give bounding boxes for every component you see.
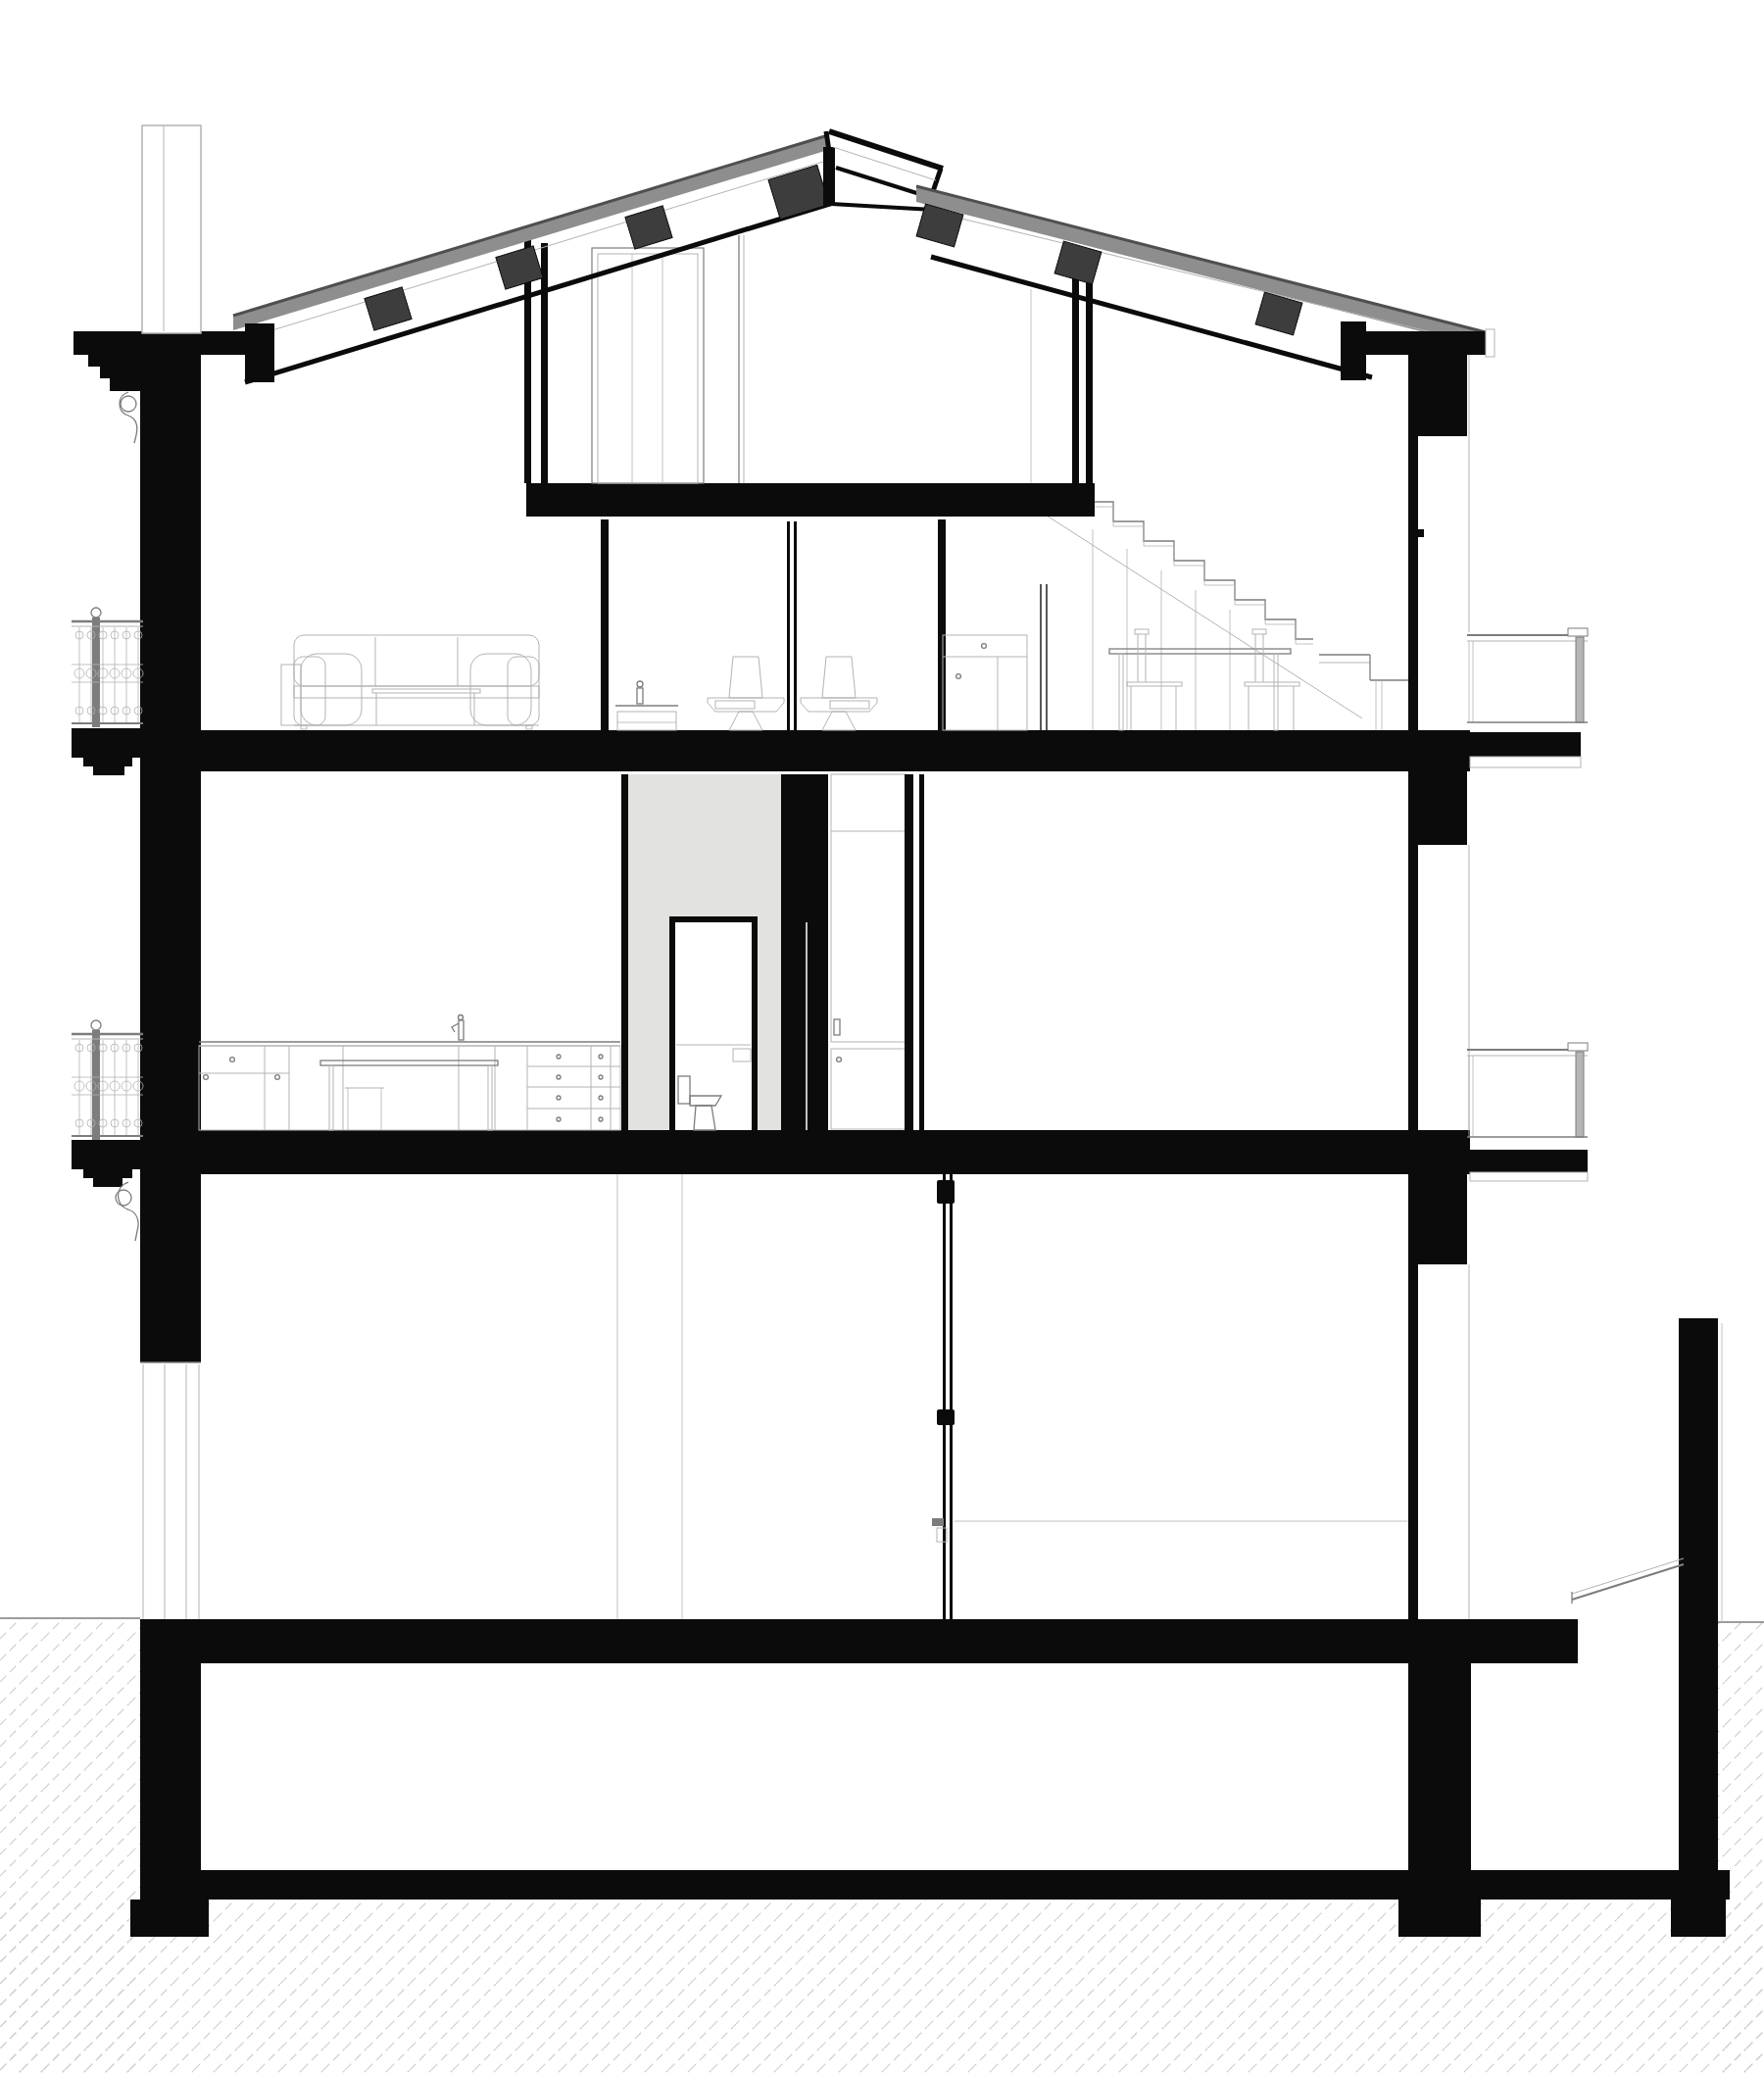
ornate-balcony-railing bbox=[72, 1020, 143, 1140]
basement-left-wall bbox=[140, 1663, 201, 1900]
left-window-ground bbox=[140, 1362, 201, 1619]
right-glazing-frame-ground bbox=[1408, 1264, 1418, 1619]
right-glazing-frame-middle bbox=[1408, 845, 1418, 1130]
right-glazing-frame-attic bbox=[1408, 436, 1418, 730]
middle-floor bbox=[72, 771, 1588, 1241]
ground-floor-slab bbox=[140, 1619, 1578, 1663]
left-wall-attic bbox=[140, 355, 201, 730]
right-roof-ceiling-line bbox=[931, 257, 1372, 377]
ornate-balcony-railing bbox=[72, 608, 143, 727]
left-balcony-slab-2 bbox=[72, 1140, 140, 1169]
left-footing bbox=[130, 1900, 209, 1937]
partition-wall bbox=[905, 774, 913, 1130]
cabinet-knobs bbox=[204, 1055, 603, 1121]
attic-partition bbox=[938, 519, 946, 730]
left-facade-railings bbox=[72, 608, 143, 1140]
dining-set bbox=[1109, 629, 1299, 730]
balcony-molding bbox=[93, 766, 124, 775]
dining-chair bbox=[1245, 629, 1299, 730]
loft-stair bbox=[1019, 498, 1362, 730]
left-eave-block bbox=[245, 323, 274, 382]
balcony-molding bbox=[83, 1169, 132, 1178]
loft-door bbox=[592, 248, 704, 483]
exterior-stair-handrail bbox=[1572, 1558, 1684, 1604]
ground-floor bbox=[140, 1174, 1684, 1663]
purlin bbox=[496, 246, 543, 289]
glass-partition-attic bbox=[787, 521, 790, 730]
kitchen-table bbox=[320, 1061, 498, 1130]
door-frame-head bbox=[669, 916, 758, 922]
door-hinge bbox=[932, 1518, 944, 1526]
garden-wall-footing bbox=[1671, 1900, 1726, 1937]
pedestal-chair bbox=[708, 657, 784, 730]
middle-footing bbox=[1398, 1900, 1481, 1937]
partition-wall bbox=[919, 774, 924, 1130]
ridge-beam bbox=[831, 204, 933, 210]
service-core bbox=[621, 774, 828, 1130]
glass-partition-attic bbox=[794, 521, 797, 730]
modern-balcony-railing bbox=[1467, 1043, 1588, 1137]
left-wall-middle bbox=[140, 771, 201, 1130]
left-balcony-slab-1 bbox=[72, 728, 140, 758]
purlin bbox=[625, 206, 672, 249]
core-door-opening bbox=[675, 922, 752, 1130]
left-wall-ground bbox=[140, 1174, 201, 1362]
purlin bbox=[1054, 241, 1102, 284]
basement-middle-wall bbox=[1408, 1663, 1471, 1900]
purlin bbox=[365, 287, 412, 330]
loft-right-wall bbox=[1072, 247, 1079, 483]
right-pier-attic bbox=[1408, 355, 1467, 436]
washbasin bbox=[615, 681, 678, 730]
right-balcony-slab-2 bbox=[1470, 1150, 1588, 1172]
stone-corbel bbox=[116, 1182, 138, 1241]
attic-floor-slab bbox=[140, 730, 1470, 771]
dining-chair bbox=[1127, 629, 1182, 730]
door-frame-jamb bbox=[752, 922, 758, 1130]
building-section-drawing bbox=[0, 0, 1764, 2073]
kitchen-faucet bbox=[452, 1015, 464, 1041]
kitchen bbox=[199, 1015, 620, 1131]
under-stair-cabinet bbox=[943, 635, 1027, 730]
glass-partition-ground bbox=[932, 1174, 1408, 1619]
earth-hatching bbox=[0, 1618, 1764, 2073]
pedestal-chair bbox=[801, 657, 877, 730]
middle-floor-slab bbox=[140, 1130, 1470, 1174]
modern-balcony-railing bbox=[1467, 628, 1588, 722]
cornice-console bbox=[120, 392, 137, 443]
balcony-soffit bbox=[1470, 757, 1581, 767]
attic-partition bbox=[601, 519, 609, 730]
balcony-molding bbox=[83, 758, 132, 766]
ridge-purlin bbox=[768, 165, 829, 219]
stair-stringer bbox=[1019, 498, 1362, 718]
window-sill-jog bbox=[1408, 529, 1424, 537]
loft-left-wall bbox=[541, 243, 548, 483]
right-balcony-slab-1 bbox=[1470, 732, 1581, 757]
right-cornice bbox=[1357, 329, 1494, 357]
right-roof-covering bbox=[916, 186, 1490, 349]
right-pier-ground bbox=[1408, 1174, 1467, 1264]
right-roof-edge bbox=[916, 186, 1490, 333]
right-pier-middle bbox=[1408, 771, 1467, 845]
section-drawing-canvas bbox=[0, 0, 1764, 2073]
wardrobe-handle bbox=[834, 1019, 840, 1035]
wardrobe bbox=[831, 774, 907, 1129]
roof bbox=[73, 125, 1494, 443]
armchair bbox=[301, 654, 362, 725]
chimney bbox=[142, 125, 201, 333]
core-black-wall bbox=[787, 774, 828, 1130]
balcony-molding bbox=[93, 1178, 122, 1187]
basement-floor-slab bbox=[140, 1870, 1730, 1900]
living-room-furniture bbox=[281, 635, 539, 729]
coffee-table bbox=[372, 689, 480, 693]
right-facade-railings bbox=[1467, 628, 1588, 1137]
stair-bottom-steps bbox=[1319, 655, 1408, 730]
earth-below bbox=[0, 1900, 1764, 2073]
balcony-soffit bbox=[1470, 1172, 1588, 1181]
door-frame-jamb bbox=[669, 922, 675, 1130]
loft-floor-slab bbox=[526, 483, 1095, 517]
garden-wall bbox=[1679, 1318, 1718, 1900]
loft-right-wall bbox=[1086, 251, 1093, 483]
